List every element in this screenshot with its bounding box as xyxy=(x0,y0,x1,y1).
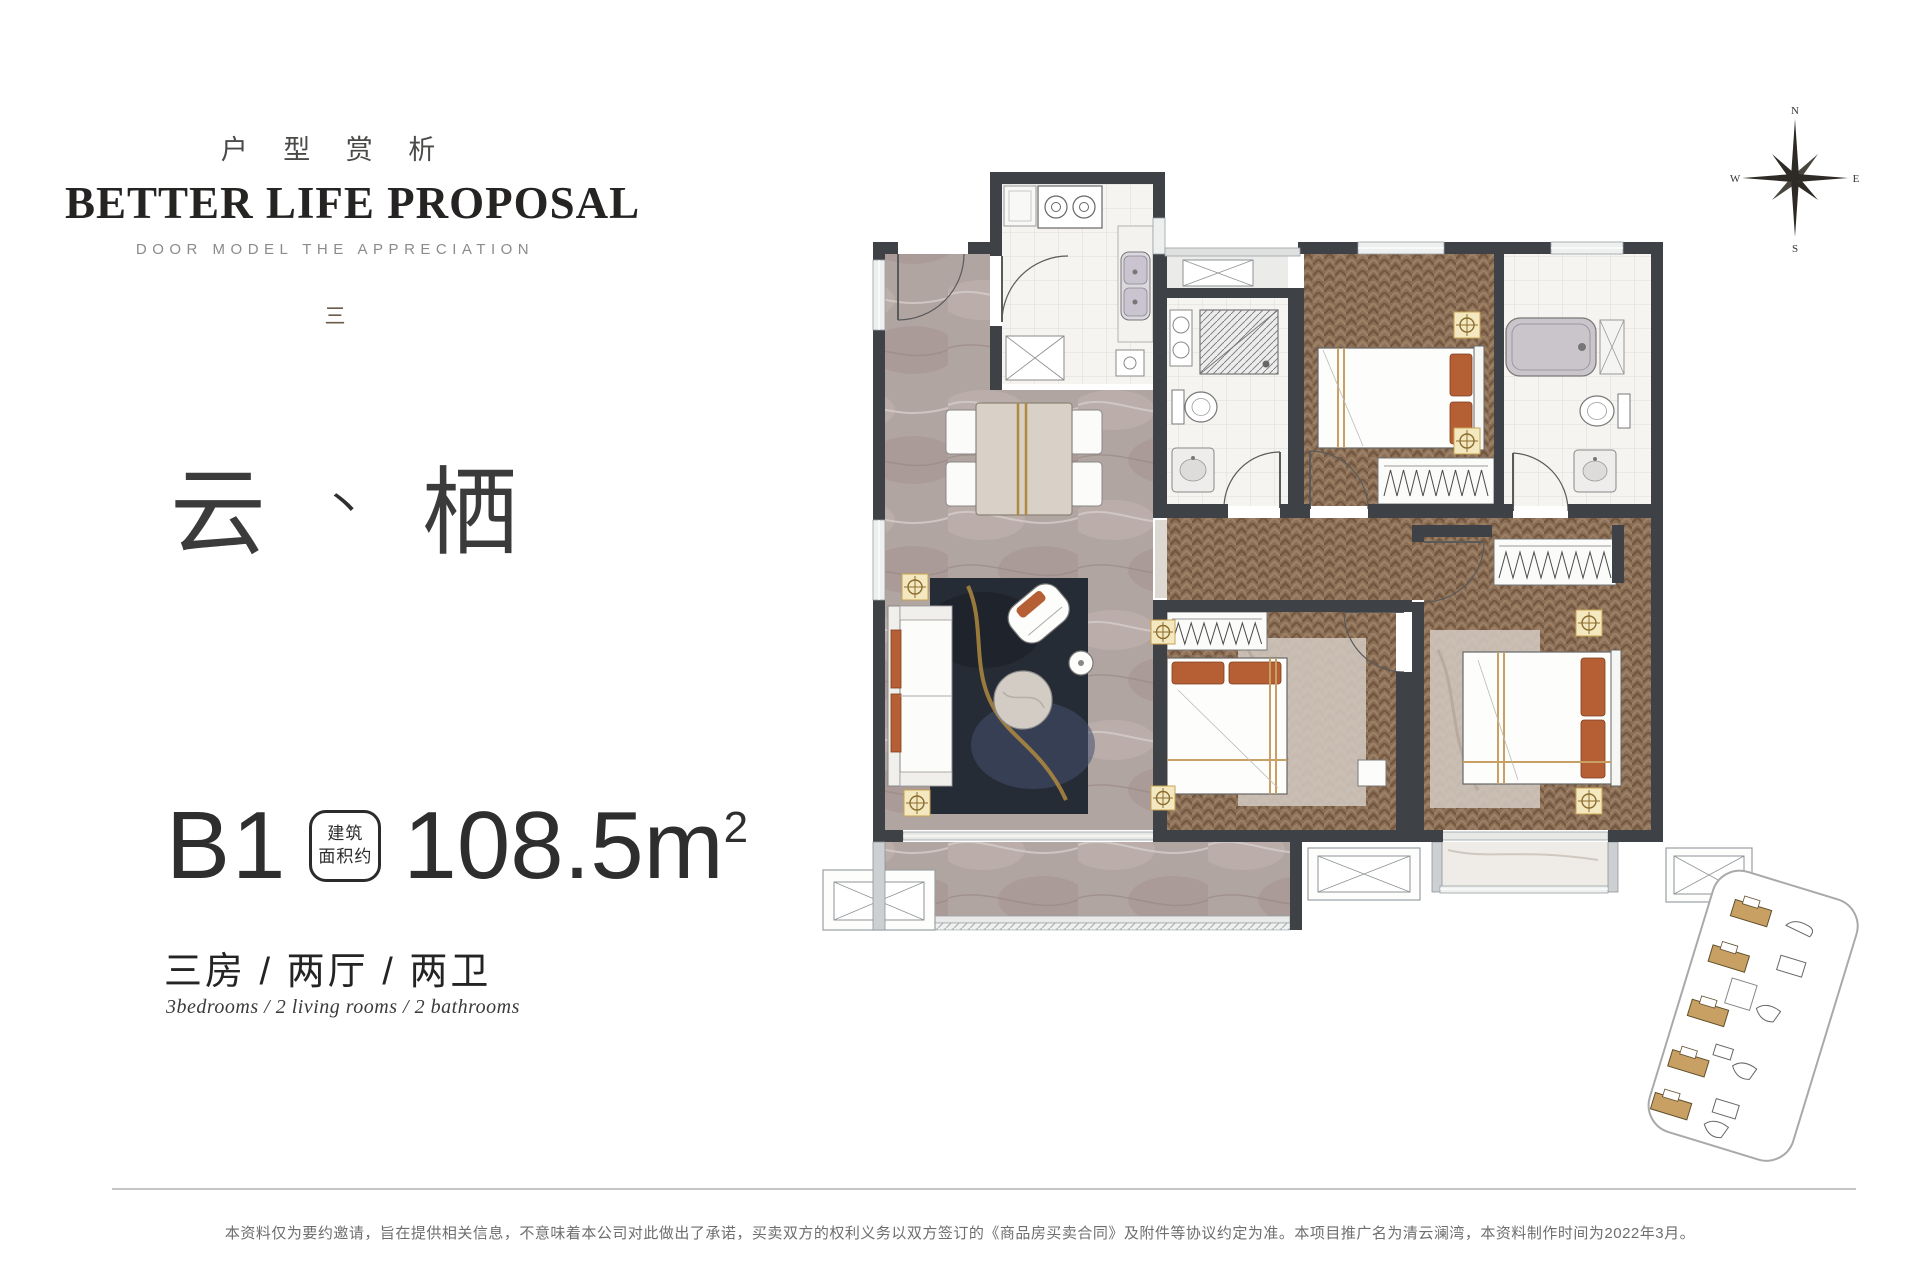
lamp-icon xyxy=(1151,620,1175,644)
lamp-icon xyxy=(904,790,930,816)
unit-name-second: 栖 xyxy=(422,466,518,562)
toilet xyxy=(1580,394,1630,428)
duct-box xyxy=(1600,320,1624,374)
chair xyxy=(1070,410,1102,454)
lamp-icon xyxy=(1576,610,1602,636)
area-badge: 建筑 面积约 xyxy=(309,810,381,882)
unit-name: 云 丶 栖 xyxy=(170,466,518,562)
disclaimer-text: 本资料仅为要约邀请，旨在提供相关信息，不意味着本公司对此做出了承诺，买卖双方的权… xyxy=(0,1222,1920,1243)
compass-east: E xyxy=(1853,173,1860,185)
plan-code: B1 xyxy=(166,798,287,894)
small-appliance xyxy=(1116,350,1144,376)
entry-floor xyxy=(885,254,990,394)
lamp-icon xyxy=(1576,788,1602,814)
cn-title: 户 型 赏 析 xyxy=(65,128,605,167)
header-block: 户 型 赏 析 BETTER LIFE PROPOSAL DOOR MODEL … xyxy=(65,128,605,330)
vanity-sink xyxy=(1172,448,1214,492)
pillow xyxy=(1581,658,1605,716)
area-badge-line1: 建筑 xyxy=(327,823,363,846)
compass-rose: N E S W xyxy=(1730,105,1870,265)
ornament-glyph: 三 xyxy=(65,300,605,330)
site-plan xyxy=(1628,858,1878,1188)
area-value: 108.5m2 xyxy=(403,798,748,894)
toilet xyxy=(1172,390,1217,424)
balcony-floor xyxy=(885,842,1290,920)
lamp-icon xyxy=(1454,428,1480,454)
pillow xyxy=(1172,662,1224,684)
en-title: BETTER LIFE PROPOSAL xyxy=(65,177,605,229)
headboard xyxy=(1611,650,1621,786)
ac-platform-middle xyxy=(1308,848,1420,900)
sofa xyxy=(888,606,952,786)
vanity-sink xyxy=(1574,450,1616,492)
lamp-icon xyxy=(1454,312,1480,338)
closet xyxy=(1494,539,1616,585)
coffee-table xyxy=(994,671,1052,729)
en-subtitle: DOOR MODEL THE APPRECIATION xyxy=(65,241,605,258)
compass-south: S xyxy=(1792,243,1798,255)
unit-name-first: 云 xyxy=(170,466,266,562)
wardrobe xyxy=(1167,612,1267,650)
rooms-summary-cn: 三房 / 两厅 / 两卫 xyxy=(164,940,491,995)
area-superscript: 2 xyxy=(724,803,748,852)
railing-hatch xyxy=(885,923,1290,930)
water-heater xyxy=(1170,310,1192,366)
dining-table xyxy=(976,403,1072,515)
bathtub xyxy=(1506,318,1596,376)
chair xyxy=(1070,462,1102,506)
footer-divider xyxy=(112,1188,1856,1190)
pillow xyxy=(1450,354,1472,396)
railing xyxy=(885,916,1290,923)
fridge-box xyxy=(1006,336,1064,380)
rooms-summary-en: 3bedrooms / 2 living rooms / 2 bathrooms xyxy=(166,996,520,1019)
floor-plan xyxy=(818,160,1768,960)
pillow xyxy=(1229,662,1281,684)
compass-west: W xyxy=(1730,173,1741,185)
kitchen-sink xyxy=(1121,252,1150,320)
bed xyxy=(1463,650,1621,786)
shower xyxy=(1200,310,1278,374)
pillow xyxy=(1581,720,1605,778)
lamp-icon xyxy=(902,574,928,600)
threshold xyxy=(1155,520,1167,598)
compass-star xyxy=(1742,119,1848,237)
elevator-shaft xyxy=(1183,260,1253,286)
bay-window-floor xyxy=(1440,842,1608,886)
spec-row: B1 建筑 面积约 108.5m2 xyxy=(166,798,748,894)
compass-north: N xyxy=(1791,105,1799,117)
stove xyxy=(1038,186,1102,228)
poster-page: 户 型 赏 析 BETTER LIFE PROPOSAL DOOR MODEL … xyxy=(0,0,1920,1274)
lamp-icon xyxy=(1151,786,1175,810)
area-badge-line2: 面积约 xyxy=(318,846,372,869)
unit-name-separator: 丶 xyxy=(322,484,366,528)
chair xyxy=(946,410,978,454)
living-room xyxy=(888,577,1095,814)
bed xyxy=(1167,658,1287,794)
nightstand xyxy=(1358,760,1386,786)
chair xyxy=(946,462,978,506)
wardrobe xyxy=(1378,458,1494,504)
